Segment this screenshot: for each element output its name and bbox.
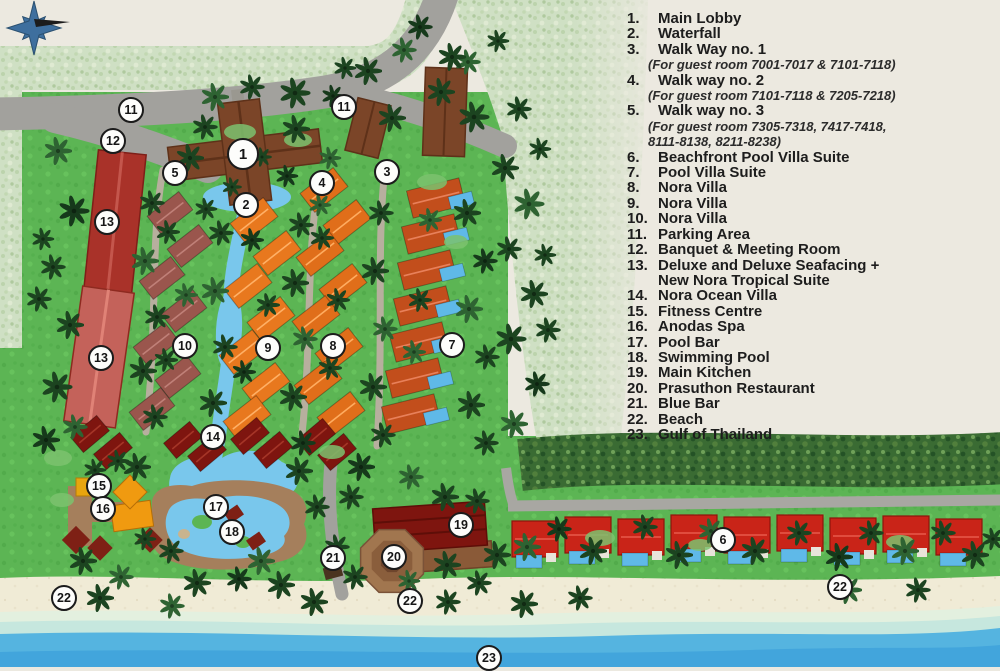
legend-item: 21.Blue Bar [627, 396, 972, 411]
legend-item: 4.Walk way no. 2(For guest room 7101-711… [627, 73, 972, 104]
legend-item-number: 6. [627, 150, 640, 165]
legend-item-label: New Nora Tropical Suite [658, 273, 972, 288]
map-marker-10: 10 [172, 333, 198, 359]
legend-item-number: 13. [627, 258, 648, 273]
legend-item: 10.Nora Villa [627, 211, 972, 226]
legend-item-label: Pool Bar [658, 335, 972, 350]
legend-item: 11.Parking Area [627, 227, 972, 242]
legend-item-label: Beach [658, 412, 972, 427]
legend-item: 20.Prasuthon Restaurant [627, 381, 972, 396]
map-marker-9: 9 [255, 335, 281, 361]
legend-item-number: 22. [627, 412, 648, 427]
legend-item-number: 12. [627, 242, 648, 257]
legend-item: 15.Fitness Centre [627, 304, 972, 319]
legend-item-number: 20. [627, 381, 648, 396]
legend-item: 17.Pool Bar [627, 335, 972, 350]
legend-item-number: 10. [627, 211, 648, 226]
legend-item-number: 8. [627, 180, 640, 195]
legend-item-label: Pool Villa Suite [658, 165, 972, 180]
legend-item: 23.Gulf of Thailand [627, 427, 972, 442]
legend-item: 22.Beach [627, 412, 972, 427]
legend-item-number: 4. [627, 73, 640, 88]
map-marker-5: 5 [162, 160, 188, 186]
legend-item-number: 15. [627, 304, 648, 319]
map-marker-11: 11 [118, 97, 144, 123]
map-marker-22: 22 [827, 574, 853, 600]
legend-item-note: (For guest room 7001-7017 & 7101-7118) [648, 57, 972, 72]
legend-item-number: 17. [627, 335, 648, 350]
legend-item-label: Swimming Pool [658, 350, 972, 365]
legend-item-note: 8111-8138, 8211-8238) [648, 134, 972, 149]
map-marker-6: 6 [710, 527, 736, 553]
legend-item: 5.Walk way no. 3(For guest room 7305-731… [627, 103, 972, 149]
resort-site-map: { "legend": { "items": [ {"num":"1.","li… [0, 0, 1000, 667]
legend-item-label: Nora Villa [658, 211, 972, 226]
map-marker-17: 17 [203, 494, 229, 520]
legend-item-label: Deluxe and Deluxe Seafacing + [658, 258, 972, 273]
legend-item: 1.Main Lobby [627, 11, 972, 26]
map-marker-14: 14 [200, 424, 226, 450]
legend-item-label: Beachfront Pool Villa Suite [658, 150, 972, 165]
legend-item: 12.Banquet & Meeting Room [627, 242, 972, 257]
map-marker-20: 20 [381, 544, 407, 570]
map-marker-7: 7 [439, 332, 465, 358]
legend-item: 19.Main Kitchen [627, 365, 972, 380]
legend-item: 3.Walk Way no. 1(For guest room 7001-701… [627, 42, 972, 73]
legend-item-number: 19. [627, 365, 648, 380]
map-marker-4: 4 [309, 170, 335, 196]
legend-item: 14.Nora Ocean Villa [627, 288, 972, 303]
legend-item-number: 18. [627, 350, 648, 365]
legend-item-label: Blue Bar [658, 396, 972, 411]
legend-item: 18.Swimming Pool [627, 350, 972, 365]
legend-item-number: 1. [627, 11, 640, 26]
map-marker-11: 11 [331, 94, 357, 120]
legend-item-note: (For guest room 7305-7318, 7417-7418, [648, 119, 972, 134]
legend-item-number: 16. [627, 319, 648, 334]
map-marker-8: 8 [320, 333, 346, 359]
legend-item-note: (For guest room 7101-7118 & 7205-7218) [648, 88, 972, 103]
legend-item-number: 14. [627, 288, 648, 303]
legend-list: 1.Main Lobby2.Waterfall3.Walk Way no. 1(… [627, 11, 972, 442]
legend-item-number: 11. [627, 227, 647, 242]
legend-item-label: Parking Area [658, 227, 972, 242]
map-marker-21: 21 [320, 545, 346, 571]
legend-item: 9.Nora Villa [627, 196, 972, 211]
legend-item-label: Waterfall [658, 26, 972, 41]
legend-item-label: Nora Villa [658, 196, 972, 211]
legend-item: 2.Waterfall [627, 26, 972, 41]
map-marker-16: 16 [90, 496, 116, 522]
legend-item: 16.Anodas Spa [627, 319, 972, 334]
legend-item-label: Nora Villa [658, 180, 972, 195]
legend-item: 8.Nora Villa [627, 180, 972, 195]
map-marker-18: 18 [219, 519, 245, 545]
legend-item: 7.Pool Villa Suite [627, 165, 972, 180]
map-marker-12: 12 [100, 128, 126, 154]
legend-item-number: 5. [627, 103, 640, 118]
legend-item-label: Walk Way no. 1 [658, 42, 972, 57]
map-marker-3: 3 [374, 159, 400, 185]
legend-item-number: 7. [627, 165, 640, 180]
legend-item-number: 9. [627, 196, 640, 211]
legend-item: 13.Deluxe and Deluxe Seafacing +New Nora… [627, 258, 972, 289]
legend-item-label: Main Kitchen [658, 365, 972, 380]
map-canvas: 1234567891011111213131415161718192021222… [0, 0, 1000, 667]
legend-item-label: Gulf of Thailand [658, 427, 972, 442]
legend-item-number: 3. [627, 42, 640, 57]
legend-item-label: Anodas Spa [658, 319, 972, 334]
legend-item-label: Prasuthon Restaurant [658, 381, 972, 396]
bottom-hedge-band [520, 458, 1000, 465]
map-marker-15: 15 [86, 473, 112, 499]
legend-item-number: 2. [627, 26, 640, 41]
legend-item-label: Fitness Centre [658, 304, 972, 319]
legend-item-number: 23. [627, 427, 648, 442]
legend-item: 6.Beachfront Pool Villa Suite [627, 150, 972, 165]
legend-item-label: Banquet & Meeting Room [658, 242, 972, 257]
legend-item-label: Walk way no. 2 [658, 73, 972, 88]
map-marker-13: 13 [94, 209, 120, 235]
legend-item-label: Walk way no. 3 [658, 103, 972, 118]
legend-item-label: Main Lobby [658, 11, 972, 26]
map-marker-1: 1 [227, 138, 259, 170]
map-marker-22: 22 [51, 585, 77, 611]
map-marker-13: 13 [88, 345, 114, 371]
map-marker-22: 22 [397, 588, 423, 614]
map-marker-2: 2 [233, 192, 259, 218]
legend-item-label: Nora Ocean Villa [658, 288, 972, 303]
map-marker-23: 23 [476, 645, 502, 671]
map-marker-19: 19 [448, 512, 474, 538]
legend-item-number: 21. [627, 396, 648, 411]
